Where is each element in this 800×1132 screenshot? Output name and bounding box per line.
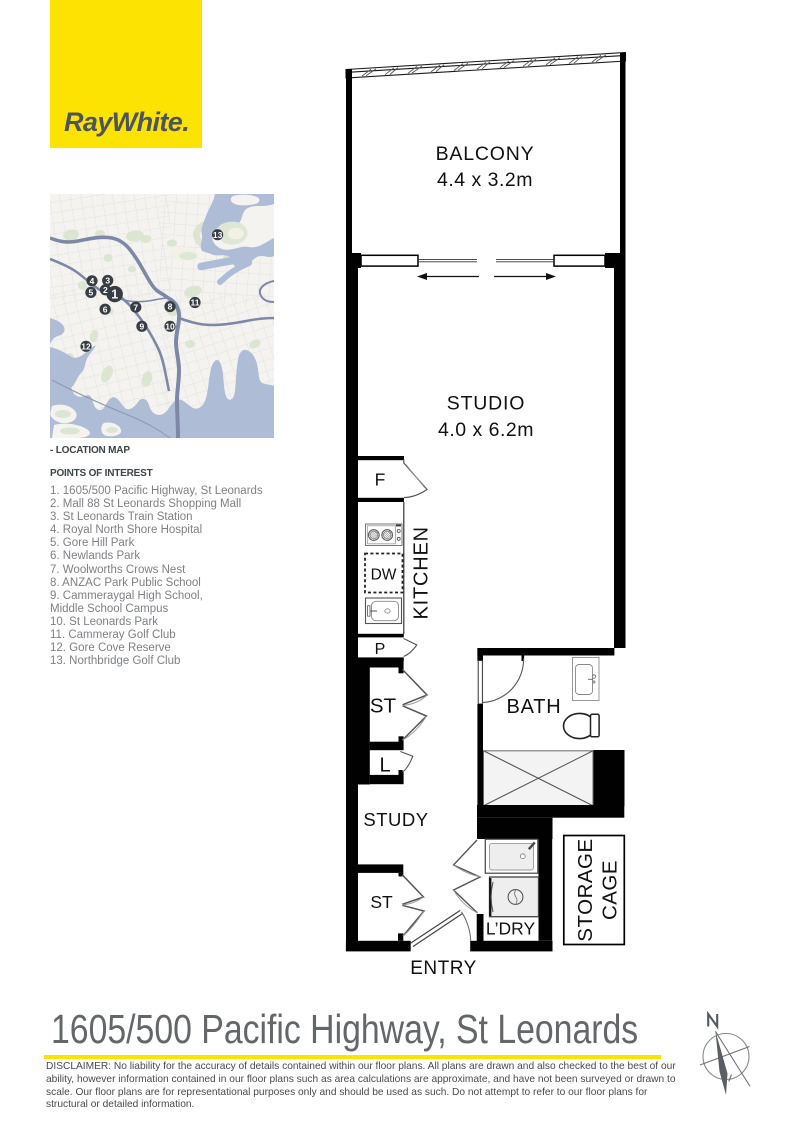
svg-text:BALCONY: BALCONY xyxy=(436,143,535,165)
svg-text:13: 13 xyxy=(213,230,223,240)
svg-text:L: L xyxy=(379,755,390,777)
svg-text:ST: ST xyxy=(370,695,397,718)
svg-text:DW: DW xyxy=(371,567,397,584)
svg-text:12: 12 xyxy=(81,341,91,351)
svg-text:1: 1 xyxy=(111,288,118,302)
svg-text:11: 11 xyxy=(191,298,200,308)
svg-text:2: 2 xyxy=(103,285,108,295)
svg-text:STUDIO: STUDIO xyxy=(447,393,525,415)
svg-text:ST: ST xyxy=(370,892,393,912)
svg-text:STORAGE: STORAGE xyxy=(574,838,597,941)
svg-text:STUDY: STUDY xyxy=(363,809,428,830)
svg-text:7: 7 xyxy=(133,302,138,312)
svg-text:P: P xyxy=(375,641,386,658)
svg-text:CAGE: CAGE xyxy=(599,860,622,920)
svg-text:3: 3 xyxy=(105,276,110,286)
svg-text:5: 5 xyxy=(89,287,94,297)
svg-text:6: 6 xyxy=(103,304,108,314)
svg-text:BATH: BATH xyxy=(506,696,561,718)
svg-text:L’DRY: L’DRY xyxy=(486,919,536,939)
svg-text:8: 8 xyxy=(168,302,173,312)
svg-text:4.0 x 6.2m: 4.0 x 6.2m xyxy=(438,419,534,441)
svg-text:F: F xyxy=(375,470,386,490)
svg-text:9: 9 xyxy=(140,321,145,331)
svg-text:4: 4 xyxy=(90,276,95,286)
svg-text:ENTRY: ENTRY xyxy=(410,958,477,979)
svg-text:KITCHEN: KITCHEN xyxy=(411,526,433,619)
svg-text:4.4 x 3.2m: 4.4 x 3.2m xyxy=(437,169,533,191)
svg-text:10: 10 xyxy=(165,321,175,331)
